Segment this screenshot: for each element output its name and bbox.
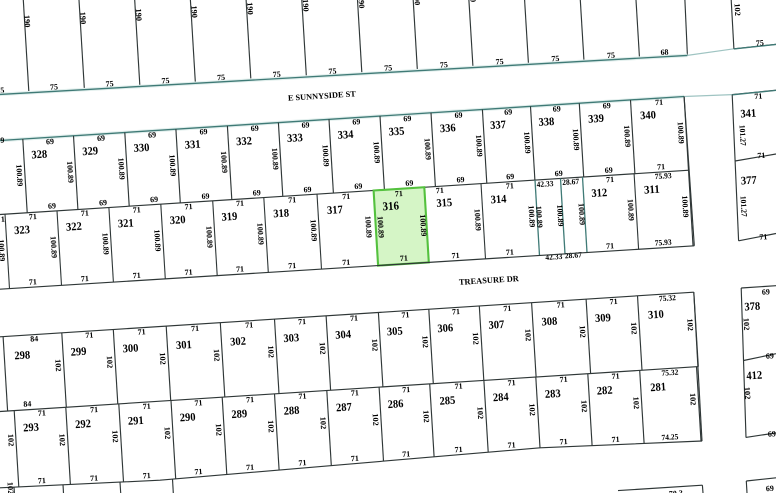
svg-text:100.89: 100.89	[270, 148, 280, 170]
svg-text:71: 71	[132, 205, 141, 214]
svg-text:100.89: 100.89	[626, 199, 636, 221]
svg-text:69: 69	[504, 107, 513, 116]
svg-text:289: 289	[231, 408, 248, 421]
svg-text:71: 71	[351, 388, 360, 397]
svg-text:100.89: 100.89	[309, 219, 319, 241]
svg-text:69: 69	[604, 165, 613, 174]
svg-text:303: 303	[283, 332, 300, 345]
svg-text:315: 315	[436, 197, 453, 210]
svg-text:283: 283	[545, 388, 562, 401]
svg-text:71: 71	[606, 241, 615, 250]
svg-text:100.89: 100.89	[376, 216, 386, 238]
svg-text:102: 102	[631, 396, 641, 409]
svg-text:84: 84	[23, 399, 32, 408]
svg-text:309: 309	[595, 312, 612, 325]
svg-text:69: 69	[405, 178, 414, 187]
svg-text:101.27: 101.27	[739, 196, 749, 217]
svg-text:69: 69	[766, 351, 775, 360]
svg-text:100.89: 100.89	[555, 204, 565, 226]
svg-text:318: 318	[273, 207, 290, 220]
svg-text:71: 71	[184, 202, 193, 211]
svg-text:287: 287	[336, 401, 353, 414]
svg-text:102: 102	[163, 426, 173, 439]
svg-text:71: 71	[137, 327, 146, 336]
svg-text:71: 71	[402, 385, 411, 394]
svg-text:71: 71	[38, 476, 47, 485]
svg-text:336: 336	[440, 122, 457, 135]
svg-text:100.89: 100.89	[152, 229, 162, 251]
svg-text:71: 71	[142, 402, 151, 411]
svg-text:71: 71	[342, 192, 351, 201]
svg-text:71: 71	[436, 186, 445, 195]
svg-text:377: 377	[741, 174, 758, 187]
svg-text:71: 71	[288, 195, 297, 204]
svg-text:332: 332	[236, 135, 253, 148]
svg-text:100.89: 100.89	[680, 195, 690, 217]
svg-text:100.89: 100.89	[423, 138, 433, 160]
svg-text:69: 69	[199, 127, 208, 136]
svg-text:9: 9	[0, 136, 5, 145]
svg-text:335: 335	[388, 125, 405, 138]
svg-text:69: 69	[454, 111, 463, 120]
svg-text:100.89: 100.89	[622, 125, 632, 147]
svg-text:305: 305	[387, 325, 404, 338]
svg-text:71: 71	[395, 189, 404, 198]
svg-text:71: 71	[288, 261, 297, 270]
svg-text:301: 301	[176, 339, 193, 352]
svg-text:71: 71	[351, 454, 360, 463]
svg-text:71: 71	[298, 317, 307, 326]
svg-text:71: 71	[757, 151, 766, 160]
svg-text:340: 340	[640, 109, 657, 122]
svg-text:100.89: 100.89	[474, 134, 484, 156]
svg-text:69: 69	[554, 169, 563, 178]
svg-text:69: 69	[602, 101, 611, 110]
svg-text:102: 102	[105, 355, 115, 368]
svg-text:100.89: 100.89	[522, 131, 532, 153]
svg-text:69: 69	[354, 182, 363, 191]
svg-text:190: 190	[189, 5, 199, 18]
svg-text:293: 293	[23, 421, 40, 434]
svg-text:69: 69	[506, 172, 515, 181]
svg-text:71: 71	[194, 398, 203, 407]
svg-text:71: 71	[342, 258, 351, 267]
svg-text:100.89: 100.89	[204, 226, 214, 248]
svg-text:102: 102	[6, 434, 16, 447]
svg-text:71: 71	[611, 435, 620, 444]
svg-text:75.93: 75.93	[654, 171, 672, 181]
svg-text:102: 102	[318, 416, 328, 429]
svg-text:69: 69	[768, 429, 776, 438]
svg-text:102: 102	[266, 420, 276, 433]
svg-text:71: 71	[559, 375, 568, 384]
svg-text:319: 319	[221, 211, 238, 224]
svg-text:71: 71	[246, 395, 255, 404]
svg-text:42.33: 42.33	[545, 252, 563, 262]
svg-text:322: 322	[66, 221, 83, 234]
svg-text:304: 304	[335, 329, 352, 342]
svg-text:100.89: 100.89	[418, 214, 428, 236]
svg-text:69: 69	[762, 287, 771, 296]
svg-text:330: 330	[133, 142, 150, 155]
svg-text:71: 71	[142, 471, 151, 480]
svg-text:71: 71	[452, 307, 461, 316]
svg-text:69: 69	[148, 130, 157, 139]
svg-text:71: 71	[298, 458, 307, 467]
svg-text:71: 71	[236, 199, 245, 208]
svg-text:71: 71	[245, 320, 254, 329]
svg-text:333: 333	[287, 132, 304, 145]
svg-text:302: 302	[230, 335, 247, 348]
svg-text:316: 316	[382, 198, 399, 213]
svg-text:190: 190	[357, 0, 367, 9]
svg-text:71: 71	[90, 405, 99, 414]
svg-text:317: 317	[327, 204, 344, 217]
svg-text:337: 337	[490, 119, 507, 132]
svg-text:71: 71	[609, 297, 618, 306]
svg-text:102: 102	[475, 406, 485, 419]
svg-text:100.89: 100.89	[676, 121, 686, 143]
svg-text:69: 69	[303, 185, 312, 194]
svg-text:100.89: 100.89	[321, 144, 331, 166]
svg-text:71: 71	[400, 254, 409, 263]
svg-text:69: 69	[301, 120, 310, 129]
svg-text:102: 102	[214, 423, 224, 436]
svg-text:100.89: 100.89	[116, 157, 126, 179]
svg-text:288: 288	[283, 405, 300, 418]
svg-text:69: 69	[766, 484, 775, 493]
svg-text:71: 71	[754, 91, 763, 100]
svg-text:102: 102	[743, 387, 753, 400]
svg-text:69: 69	[201, 191, 210, 200]
svg-text:100.89: 100.89	[0, 239, 7, 261]
svg-text:69: 69	[48, 201, 57, 210]
svg-text:190: 190	[245, 2, 255, 15]
svg-text:71: 71	[90, 473, 99, 482]
svg-text:100.89: 100.89	[65, 161, 75, 183]
svg-text:328: 328	[31, 148, 48, 161]
svg-text:299: 299	[70, 346, 87, 359]
svg-text:71: 71	[506, 247, 515, 256]
svg-text:69: 69	[250, 124, 259, 133]
svg-text:42.33: 42.33	[536, 179, 554, 189]
svg-text:71: 71	[451, 251, 460, 260]
svg-text:100.89: 100.89	[167, 154, 177, 176]
svg-text:310: 310	[648, 309, 665, 322]
svg-text:102: 102	[371, 413, 381, 426]
svg-text:71: 71	[85, 331, 94, 340]
svg-text:286: 286	[387, 398, 404, 411]
svg-text:69: 69	[97, 134, 106, 143]
svg-text:75.32: 75.32	[661, 368, 679, 378]
svg-text:331: 331	[184, 139, 201, 152]
svg-text:102: 102	[578, 325, 588, 338]
svg-text:102: 102	[158, 352, 168, 365]
svg-text:102: 102	[733, 3, 743, 16]
svg-text:102: 102	[527, 403, 537, 416]
svg-text:284: 284	[493, 391, 510, 404]
svg-text:71: 71	[350, 314, 359, 323]
svg-text:71: 71	[454, 445, 463, 454]
svg-text:100.89: 100.89	[577, 203, 587, 225]
svg-text:75.93: 75.93	[654, 238, 672, 248]
svg-text:100.89: 100.89	[255, 223, 265, 245]
svg-text:102: 102	[471, 332, 481, 345]
svg-text:338: 338	[538, 116, 555, 129]
svg-text:71: 71	[559, 437, 568, 446]
svg-text:292: 292	[75, 418, 92, 431]
svg-text:102: 102	[318, 342, 328, 355]
svg-text:102: 102	[421, 410, 431, 423]
svg-text:281: 281	[650, 381, 667, 394]
svg-text:102: 102	[629, 322, 639, 335]
svg-text:71: 71	[401, 310, 410, 319]
svg-text:100.89: 100.89	[100, 232, 110, 254]
svg-text:339: 339	[588, 113, 605, 126]
svg-text:100.89: 100.89	[571, 128, 581, 150]
svg-text:282: 282	[596, 385, 613, 398]
svg-text:71: 71	[657, 162, 666, 171]
svg-text:334: 334	[337, 129, 354, 142]
svg-text:378: 378	[744, 300, 761, 313]
svg-text:71: 71	[29, 212, 38, 221]
svg-text:102: 102	[266, 345, 276, 358]
svg-text:100.89: 100.89	[534, 206, 544, 228]
svg-text:71: 71	[184, 268, 193, 277]
svg-text:100.89: 100.89	[49, 236, 59, 258]
svg-text:190: 190	[301, 0, 311, 12]
svg-text:291: 291	[128, 415, 145, 428]
svg-text:102: 102	[57, 433, 67, 446]
svg-text:102: 102	[420, 335, 430, 348]
svg-text:312: 312	[591, 187, 608, 200]
svg-text:69: 69	[99, 198, 108, 207]
svg-text:311: 311	[644, 184, 661, 197]
svg-text:69: 69	[352, 117, 361, 126]
svg-text:71: 71	[507, 378, 516, 387]
svg-text:69: 69	[46, 137, 55, 146]
svg-text:69: 69	[552, 104, 561, 113]
svg-text:1: 1	[1, 215, 6, 224]
svg-text:71: 71	[503, 304, 512, 313]
svg-text:28.67: 28.67	[565, 250, 583, 260]
svg-text:341: 341	[740, 107, 757, 120]
svg-text:306: 306	[437, 322, 454, 335]
svg-text:71: 71	[454, 382, 463, 391]
svg-text:285: 285	[439, 395, 456, 408]
svg-text:100.89: 100.89	[473, 209, 483, 231]
svg-text:69: 69	[150, 195, 159, 204]
svg-text:71: 71	[506, 181, 515, 190]
svg-text:71: 71	[759, 232, 768, 241]
svg-text:412: 412	[746, 369, 763, 382]
svg-text:71: 71	[246, 463, 255, 472]
svg-text:314: 314	[490, 193, 507, 206]
svg-text:102: 102	[523, 329, 533, 342]
svg-text:100.89: 100.89	[219, 151, 229, 173]
svg-text:320: 320	[169, 214, 186, 227]
svg-text:69: 69	[456, 175, 465, 184]
svg-text:71: 71	[611, 371, 620, 380]
svg-text:71: 71	[236, 264, 245, 273]
svg-text:74.25: 74.25	[661, 432, 679, 442]
svg-text:102: 102	[688, 393, 698, 406]
svg-text:190: 190	[412, 0, 422, 5]
svg-text:102: 102	[685, 318, 695, 331]
svg-text:100.89: 100.89	[372, 141, 382, 163]
svg-text:71: 71	[194, 467, 203, 476]
svg-text:71: 71	[556, 300, 565, 309]
svg-text:69: 69	[252, 188, 261, 197]
svg-text:71: 71	[132, 271, 141, 280]
svg-text:102: 102	[53, 359, 63, 372]
svg-text:75.32: 75.32	[659, 293, 677, 303]
svg-text:69: 69	[403, 114, 412, 123]
svg-text:71: 71	[298, 392, 307, 401]
svg-text:190: 190	[134, 8, 144, 21]
svg-text:71: 71	[507, 440, 516, 449]
svg-text:300: 300	[122, 342, 139, 355]
svg-text:321: 321	[118, 217, 135, 230]
svg-text:71: 71	[606, 175, 615, 184]
svg-text:75: 75	[756, 38, 765, 47]
svg-text:102: 102	[6, 482, 16, 493]
svg-text:102: 102	[370, 338, 380, 351]
svg-text:71: 71	[655, 98, 664, 107]
svg-text:190: 190	[22, 15, 32, 28]
svg-text:71: 71	[191, 324, 200, 333]
svg-text:71: 71	[402, 449, 411, 458]
svg-text:102: 102	[742, 318, 752, 331]
svg-text:102: 102	[110, 430, 120, 443]
svg-text:323: 323	[14, 224, 31, 237]
svg-text:329: 329	[82, 145, 99, 158]
svg-text:28.67: 28.67	[562, 177, 580, 187]
svg-text:101.27: 101.27	[738, 125, 748, 146]
svg-text:71: 71	[29, 277, 38, 286]
svg-text:102: 102	[579, 400, 589, 413]
svg-text:290: 290	[179, 411, 196, 424]
svg-text:71: 71	[81, 209, 90, 218]
svg-text:190: 190	[78, 11, 88, 24]
svg-text:102: 102	[212, 349, 222, 362]
svg-text:71: 71	[38, 408, 47, 417]
svg-text:70.3: 70.3	[669, 489, 684, 493]
svg-text:307: 307	[488, 319, 505, 332]
svg-text:100.89: 100.89	[363, 216, 373, 238]
svg-text:298: 298	[14, 349, 31, 362]
svg-text:308: 308	[541, 315, 558, 328]
svg-text:100.89: 100.89	[14, 164, 24, 186]
svg-text:84: 84	[30, 334, 39, 343]
svg-text:71: 71	[81, 274, 90, 283]
